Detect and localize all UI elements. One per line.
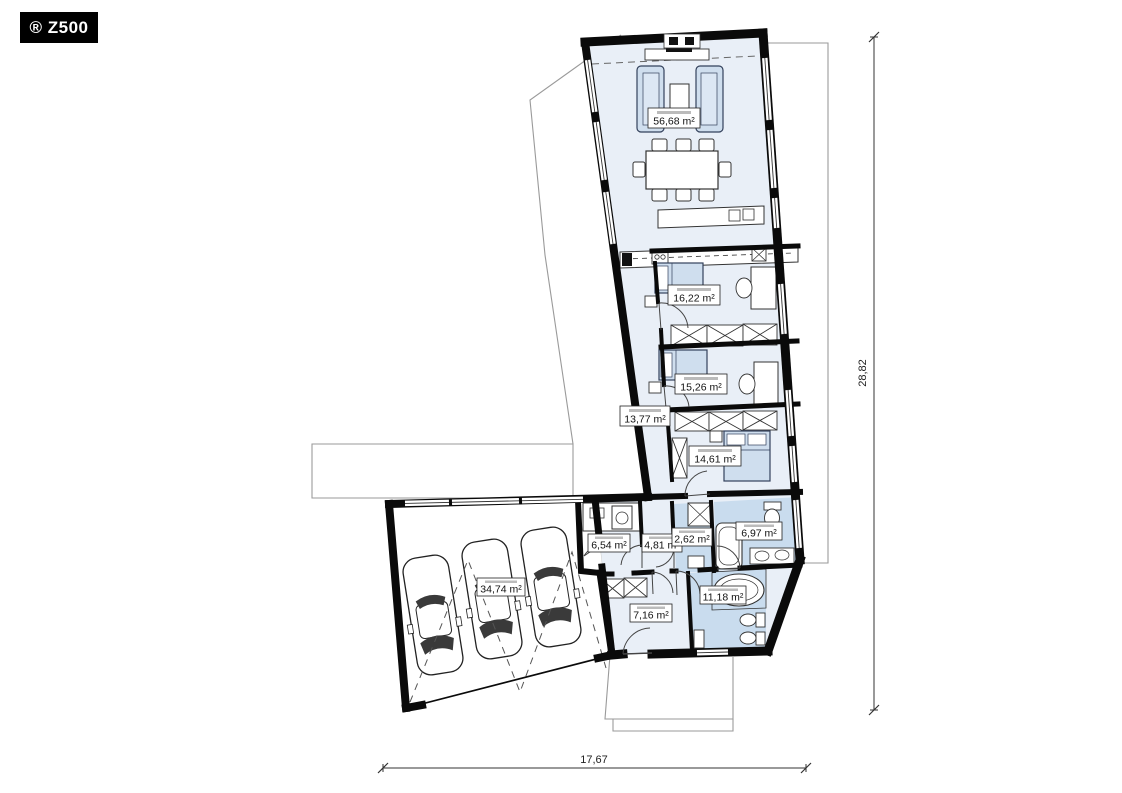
room-label-bathroom2: 11,18 m² — [700, 586, 746, 604]
chair-icon — [736, 278, 752, 298]
paving-strip — [312, 444, 573, 498]
fireplace-niche-icon — [664, 34, 700, 48]
room-label-bedroom2: 15,26 m² — [675, 374, 727, 394]
svg-text:6,54 m²: 6,54 m² — [591, 540, 627, 552]
room-label-garage: 34,74 m² — [477, 578, 525, 596]
fridge-icon — [622, 253, 632, 266]
svg-text:14,61 m²: 14,61 m² — [694, 454, 736, 466]
nightstand-icon — [710, 431, 722, 442]
nightstand-icon — [645, 296, 657, 307]
room-label-bedroom3: 14,61 m² — [689, 446, 741, 466]
svg-text:7,16 m²: 7,16 m² — [633, 610, 669, 622]
desk-icon — [751, 267, 776, 309]
room-label-bathroom1: 6,97 m² — [736, 522, 782, 540]
floor-plan-drawing: 56,68 m² 16,22 m² 15,26 m² 13,77 m² 14,6 — [0, 0, 1122, 793]
brand-logo-text: ® Z500 — [30, 18, 89, 38]
room-label-entry: 7,16 m² — [630, 604, 672, 622]
svg-text:13,77 m²: 13,77 m² — [624, 414, 666, 426]
toilet-icon — [740, 613, 765, 627]
double-washbasin-icon — [750, 548, 794, 564]
svg-text:2,62 m²: 2,62 m² — [674, 534, 710, 546]
svg-text:6,97 m²: 6,97 m² — [741, 528, 777, 540]
washbasin-icon — [688, 556, 704, 568]
dimension-right — [869, 32, 879, 715]
svg-text:15,26 m²: 15,26 m² — [680, 382, 722, 394]
washing-machine-icon — [612, 506, 632, 529]
dimension-width-value: 17,67 — [580, 754, 608, 766]
room-label-wc: 2,62 m² — [672, 528, 712, 546]
svg-text:11,18 m²: 11,18 m² — [703, 592, 744, 604]
room-label-living-dining: 56,68 m² — [648, 108, 700, 128]
bidet-icon — [740, 632, 765, 645]
svg-text:16,22 m²: 16,22 m² — [673, 293, 715, 305]
chair-icon — [739, 374, 755, 394]
nightstand-icon — [649, 382, 661, 393]
kitchen-island-icon — [658, 206, 764, 228]
room-label-hallway: 13,77 m² — [620, 406, 670, 426]
svg-text:34,74 m²: 34,74 m² — [480, 584, 522, 596]
utility-furniture — [583, 503, 641, 531]
room-label-bedroom1: 16,22 m² — [668, 285, 720, 305]
desk-icon — [754, 362, 778, 406]
brand-logo: ® Z500 — [20, 12, 98, 43]
terrace-step — [613, 719, 733, 731]
dimension-height-value: 28,82 — [857, 359, 869, 387]
washbasin-icon — [694, 630, 704, 648]
floor-plan-page: 56,68 m² 16,22 m² 15,26 m² 13,77 m² 14,6 — [0, 0, 1122, 793]
terrace-outline — [605, 655, 733, 719]
room-label-utility: 6,54 m² — [588, 534, 630, 552]
shower-icon — [688, 503, 712, 526]
svg-text:56,68 m²: 56,68 m² — [653, 116, 695, 128]
